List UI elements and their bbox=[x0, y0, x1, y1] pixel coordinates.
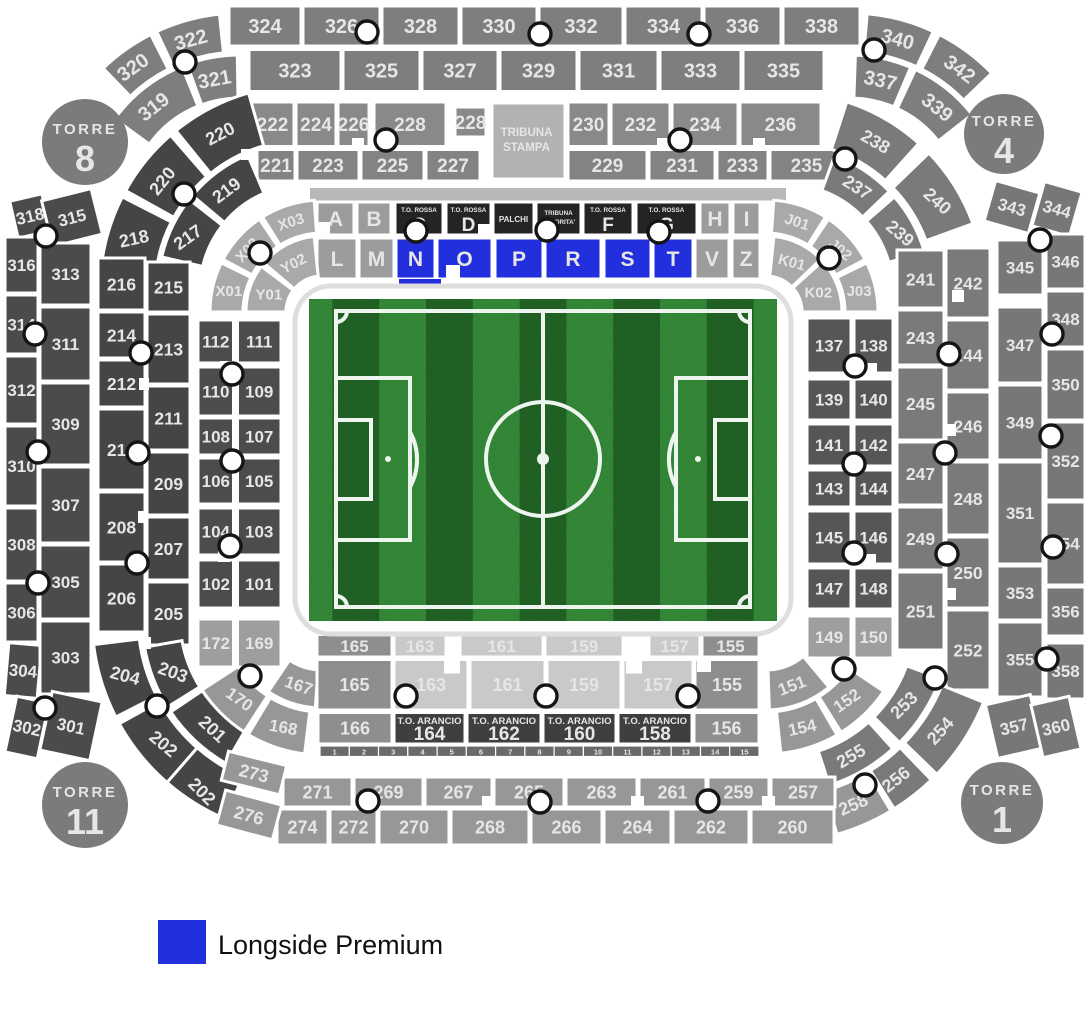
svg-text:308: 308 bbox=[7, 536, 35, 555]
svg-text:243: 243 bbox=[906, 328, 935, 348]
svg-text:313: 313 bbox=[51, 265, 79, 284]
svg-text:216: 216 bbox=[107, 274, 136, 294]
svg-text:221: 221 bbox=[260, 156, 292, 177]
svg-text:236: 236 bbox=[765, 115, 797, 136]
svg-text:260: 260 bbox=[777, 818, 807, 838]
svg-text:346: 346 bbox=[1051, 253, 1079, 272]
svg-text:303: 303 bbox=[51, 649, 79, 668]
svg-text:X01: X01 bbox=[216, 283, 243, 300]
svg-text:165: 165 bbox=[340, 637, 368, 656]
svg-text:271: 271 bbox=[302, 783, 332, 803]
svg-text:261: 261 bbox=[657, 783, 687, 803]
svg-text:157: 157 bbox=[660, 637, 688, 656]
svg-text:1: 1 bbox=[992, 799, 1012, 840]
svg-text:14: 14 bbox=[711, 748, 720, 757]
svg-text:155: 155 bbox=[716, 637, 744, 656]
svg-text:108: 108 bbox=[202, 428, 230, 447]
svg-text:T: T bbox=[667, 248, 680, 271]
svg-text:332: 332 bbox=[564, 16, 597, 38]
svg-text:347: 347 bbox=[1006, 336, 1034, 355]
svg-text:9: 9 bbox=[567, 748, 571, 757]
svg-text:148: 148 bbox=[859, 580, 887, 599]
svg-text:245: 245 bbox=[906, 394, 935, 414]
svg-text:T.O. ROSSA: T.O. ROSSA bbox=[649, 207, 685, 214]
svg-text:157: 157 bbox=[643, 675, 673, 695]
svg-text:334: 334 bbox=[647, 16, 681, 38]
svg-text:156: 156 bbox=[711, 719, 741, 739]
svg-text:270: 270 bbox=[399, 818, 429, 838]
svg-text:103: 103 bbox=[245, 523, 273, 542]
svg-text:158: 158 bbox=[639, 724, 671, 745]
svg-text:226: 226 bbox=[338, 115, 370, 136]
svg-text:I: I bbox=[744, 208, 750, 231]
svg-text:J03: J03 bbox=[847, 283, 872, 300]
svg-text:327: 327 bbox=[443, 61, 476, 83]
svg-text:306: 306 bbox=[7, 604, 35, 623]
svg-text:106: 106 bbox=[202, 472, 230, 491]
svg-text:166: 166 bbox=[340, 719, 370, 739]
svg-text:169: 169 bbox=[245, 634, 273, 653]
svg-text:5: 5 bbox=[450, 748, 454, 757]
svg-text:324: 324 bbox=[248, 16, 282, 38]
svg-text:138: 138 bbox=[859, 337, 887, 356]
svg-text:144: 144 bbox=[859, 480, 888, 499]
svg-text:330: 330 bbox=[482, 16, 515, 38]
svg-text:356: 356 bbox=[1051, 603, 1079, 622]
svg-text:263: 263 bbox=[586, 783, 616, 803]
svg-text:336: 336 bbox=[726, 16, 759, 38]
svg-text:139: 139 bbox=[815, 391, 843, 410]
svg-text:215: 215 bbox=[154, 277, 183, 297]
svg-text:224: 224 bbox=[300, 115, 332, 136]
svg-text:TRIBUNA: TRIBUNA bbox=[544, 210, 573, 217]
svg-text:V: V bbox=[705, 248, 719, 271]
svg-text:309: 309 bbox=[51, 415, 79, 434]
svg-text:172: 172 bbox=[202, 634, 230, 653]
svg-text:H: H bbox=[707, 208, 722, 231]
svg-text:163: 163 bbox=[416, 675, 446, 695]
svg-text:230: 230 bbox=[573, 115, 605, 136]
svg-text:325: 325 bbox=[365, 61, 398, 83]
svg-text:272: 272 bbox=[338, 818, 368, 838]
svg-text:241: 241 bbox=[906, 269, 935, 289]
svg-text:316: 316 bbox=[7, 256, 35, 275]
svg-text:105: 105 bbox=[245, 472, 273, 491]
svg-text:107: 107 bbox=[245, 428, 273, 447]
svg-text:8: 8 bbox=[75, 138, 95, 179]
svg-text:262: 262 bbox=[696, 818, 726, 838]
svg-text:228: 228 bbox=[394, 115, 426, 136]
svg-text:8: 8 bbox=[537, 748, 541, 757]
svg-text:206: 206 bbox=[107, 588, 136, 608]
svg-text:163: 163 bbox=[406, 637, 434, 656]
svg-text:Y01: Y01 bbox=[256, 287, 283, 304]
svg-text:F: F bbox=[602, 215, 614, 236]
svg-text:Z: Z bbox=[740, 248, 753, 271]
svg-text:257: 257 bbox=[788, 783, 818, 803]
svg-text:2: 2 bbox=[362, 748, 366, 757]
svg-text:213: 213 bbox=[154, 339, 183, 359]
svg-text:250: 250 bbox=[953, 563, 982, 583]
svg-text:T.O. ROSSA: T.O. ROSSA bbox=[590, 207, 626, 214]
svg-text:235: 235 bbox=[791, 156, 823, 177]
svg-text:P: P bbox=[512, 248, 526, 271]
svg-text:13: 13 bbox=[682, 748, 690, 757]
svg-text:214: 214 bbox=[107, 325, 136, 345]
svg-text:TORRE: TORRE bbox=[53, 784, 118, 801]
svg-text:TORRE: TORRE bbox=[970, 782, 1035, 799]
svg-text:351: 351 bbox=[1006, 504, 1034, 523]
svg-text:TRIBUNA: TRIBUNA bbox=[501, 127, 553, 139]
svg-text:TORRE: TORRE bbox=[53, 121, 118, 138]
svg-text:160: 160 bbox=[564, 724, 596, 745]
svg-text:N: N bbox=[408, 248, 423, 271]
svg-text:102: 102 bbox=[202, 575, 230, 594]
svg-text:207: 207 bbox=[154, 539, 183, 559]
svg-text:15: 15 bbox=[740, 748, 748, 757]
svg-text:328: 328 bbox=[404, 16, 437, 38]
svg-text:111: 111 bbox=[246, 333, 273, 352]
svg-text:232: 232 bbox=[625, 115, 657, 136]
svg-text:225: 225 bbox=[377, 156, 409, 177]
svg-text:140: 140 bbox=[859, 391, 887, 410]
svg-text:266: 266 bbox=[551, 818, 581, 838]
svg-text:326: 326 bbox=[325, 16, 358, 38]
svg-text:STAMPA: STAMPA bbox=[503, 142, 550, 154]
svg-text:249: 249 bbox=[906, 529, 935, 549]
svg-text:311: 311 bbox=[52, 335, 79, 354]
svg-text:212: 212 bbox=[107, 374, 136, 394]
svg-text:12: 12 bbox=[652, 748, 660, 757]
svg-text:Longside Premium: Longside Premium bbox=[218, 930, 443, 960]
svg-text:355: 355 bbox=[1006, 651, 1034, 670]
svg-text:259: 259 bbox=[723, 783, 753, 803]
svg-text:143: 143 bbox=[815, 480, 843, 499]
svg-text:234: 234 bbox=[689, 115, 721, 136]
svg-text:350: 350 bbox=[1051, 376, 1079, 395]
svg-text:305: 305 bbox=[51, 573, 79, 592]
svg-text:349: 349 bbox=[1006, 414, 1034, 433]
svg-text:11: 11 bbox=[623, 748, 631, 757]
svg-text:T.O. ROSSA: T.O. ROSSA bbox=[451, 207, 487, 214]
svg-text:165: 165 bbox=[339, 675, 369, 695]
svg-text:267: 267 bbox=[443, 783, 473, 803]
svg-text:223: 223 bbox=[312, 156, 344, 177]
svg-text:159: 159 bbox=[570, 637, 598, 656]
svg-text:228: 228 bbox=[455, 113, 487, 134]
svg-text:304: 304 bbox=[8, 660, 38, 681]
svg-text:6: 6 bbox=[479, 748, 483, 757]
svg-text:112: 112 bbox=[202, 333, 229, 352]
svg-text:110: 110 bbox=[202, 383, 229, 402]
svg-text:231: 231 bbox=[666, 156, 698, 177]
svg-text:205: 205 bbox=[154, 604, 183, 624]
svg-text:109: 109 bbox=[245, 383, 273, 402]
svg-text:233: 233 bbox=[727, 156, 759, 177]
svg-text:335: 335 bbox=[767, 61, 800, 83]
svg-text:L: L bbox=[331, 248, 344, 271]
svg-text:161: 161 bbox=[492, 675, 522, 695]
svg-text:M: M bbox=[368, 248, 386, 271]
svg-text:PALCHI: PALCHI bbox=[499, 215, 528, 224]
svg-text:149: 149 bbox=[815, 628, 843, 647]
svg-text:D: D bbox=[462, 215, 476, 236]
svg-text:307: 307 bbox=[51, 496, 79, 515]
svg-text:R: R bbox=[565, 248, 580, 271]
svg-text:338: 338 bbox=[805, 16, 838, 38]
svg-text:10: 10 bbox=[594, 748, 602, 757]
svg-text:208: 208 bbox=[107, 517, 136, 537]
svg-text:323: 323 bbox=[278, 61, 311, 83]
svg-text:252: 252 bbox=[953, 640, 982, 660]
svg-text:142: 142 bbox=[859, 436, 887, 455]
svg-text:227: 227 bbox=[437, 156, 469, 177]
svg-text:141: 141 bbox=[815, 436, 843, 455]
svg-text:352: 352 bbox=[1051, 452, 1079, 471]
svg-text:155: 155 bbox=[712, 675, 742, 695]
svg-text:4: 4 bbox=[994, 130, 1014, 171]
svg-text:TORRE: TORRE bbox=[972, 113, 1037, 130]
svg-text:K02: K02 bbox=[805, 284, 833, 301]
svg-text:137: 137 bbox=[815, 337, 843, 356]
svg-text:229: 229 bbox=[592, 156, 624, 177]
svg-text:247: 247 bbox=[906, 464, 935, 484]
svg-text:268: 268 bbox=[475, 818, 505, 838]
svg-text:1: 1 bbox=[333, 748, 337, 757]
svg-text:A: A bbox=[328, 208, 343, 231]
svg-text:329: 329 bbox=[522, 61, 555, 83]
svg-text:251: 251 bbox=[906, 601, 935, 621]
svg-text:150: 150 bbox=[859, 628, 887, 647]
svg-text:331: 331 bbox=[602, 61, 635, 83]
svg-text:S: S bbox=[620, 248, 634, 271]
svg-text:159: 159 bbox=[569, 675, 599, 695]
svg-text:209: 209 bbox=[154, 474, 183, 494]
svg-text:B: B bbox=[366, 208, 381, 231]
svg-text:211: 211 bbox=[154, 408, 182, 428]
svg-text:7: 7 bbox=[508, 748, 512, 757]
svg-text:353: 353 bbox=[1006, 584, 1034, 603]
svg-text:11: 11 bbox=[66, 801, 104, 842]
svg-text:248: 248 bbox=[953, 489, 982, 509]
svg-text:164: 164 bbox=[414, 724, 446, 745]
svg-text:T.O. ROSSA: T.O. ROSSA bbox=[401, 207, 437, 214]
svg-text:101: 101 bbox=[245, 575, 273, 594]
svg-text:161: 161 bbox=[487, 637, 515, 656]
svg-text:145: 145 bbox=[815, 529, 843, 548]
svg-text:147: 147 bbox=[815, 580, 843, 599]
svg-text:345: 345 bbox=[1006, 259, 1034, 278]
svg-text:264: 264 bbox=[622, 818, 652, 838]
svg-text:162: 162 bbox=[488, 724, 520, 745]
svg-text:312: 312 bbox=[7, 381, 35, 400]
svg-text:274: 274 bbox=[287, 818, 317, 838]
svg-text:246: 246 bbox=[953, 416, 982, 436]
svg-text:3: 3 bbox=[391, 748, 395, 757]
svg-text:333: 333 bbox=[684, 61, 717, 83]
